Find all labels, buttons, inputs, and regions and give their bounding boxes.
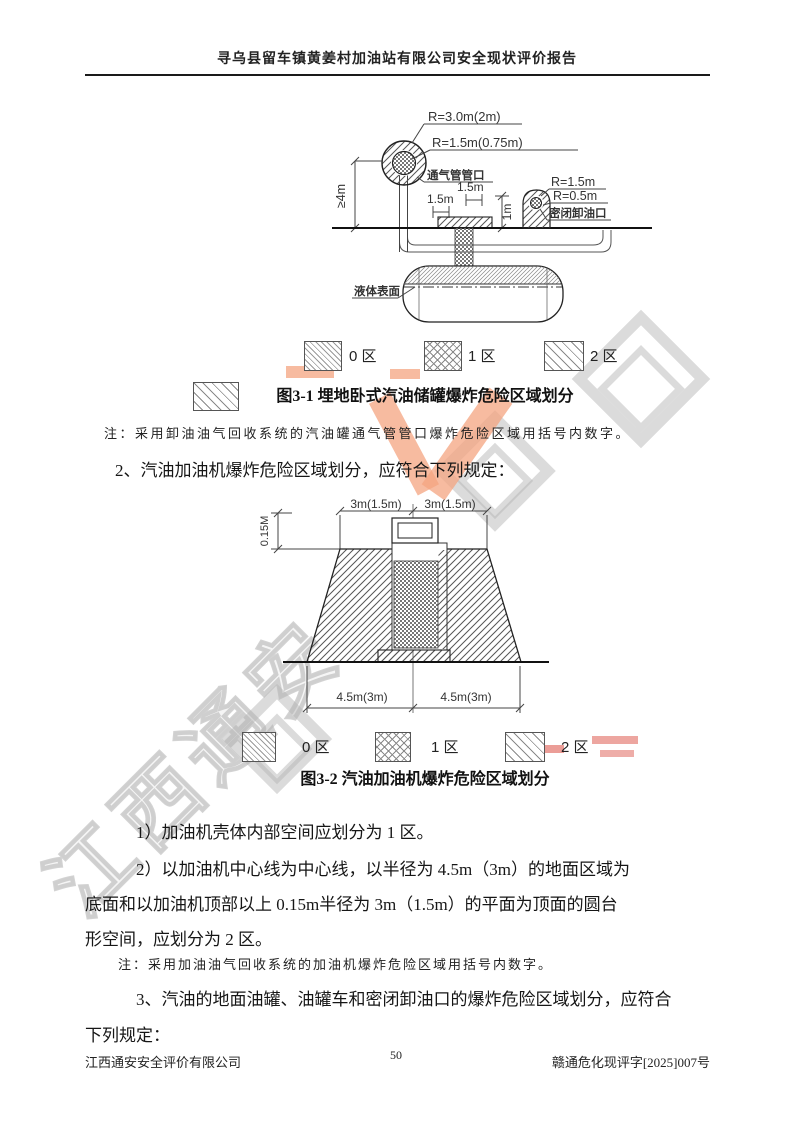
footer-doc-number: 赣通危化现评字[2025]007号 — [470, 1052, 710, 1071]
zone1-column — [455, 228, 473, 266]
legend-swatch-zone0 — [304, 341, 342, 371]
legend-swatch-zone2 — [505, 732, 545, 762]
legend-label-zone0: 0 区 — [302, 736, 330, 757]
vent-zone1-circle — [393, 152, 416, 175]
dim-top-left-label: 3m(1.5m) — [350, 497, 401, 511]
figure-3-1-diagram: ≥4m R=3.0m(2m) R=1.5m(0.75m) 通气管管口 1.5m … — [330, 100, 665, 332]
header-rule — [85, 74, 710, 76]
dim-4m — [351, 157, 383, 232]
dispenser-zone1-fill — [394, 561, 438, 648]
dispenser-side-hatch — [439, 550, 447, 649]
dispenser-display-inner — [398, 523, 432, 538]
unload-port-label: 密闭卸油口 — [548, 206, 607, 220]
body-item2-line1: 2）以加油机中心线为中心线，以半径为 4.5m（3m）的地面区域为 — [136, 855, 630, 880]
page-title: 寻乌县留车镇黄姜村加油站有限公司安全现状评价报告 — [0, 48, 794, 68]
vent-inner-radius-label: R=1.5m(0.75m) — [432, 135, 523, 150]
vent-outer-radius-label: R=3.0m(2m) — [428, 109, 501, 124]
legend-swatch-zone1 — [375, 732, 411, 762]
dim-height-label: 0.15M — [259, 516, 271, 547]
dim-top-right-label: 3m(1.5m) — [424, 497, 475, 511]
body-note2: 注：采用加油油气回收系统的加油机爆炸危险区域用括号内数字。 — [118, 954, 553, 973]
dispenser-base — [378, 650, 450, 662]
watermark-red-fragment — [600, 750, 634, 757]
tank-vapor-zone — [403, 266, 563, 284]
body-item3-line1: 3、汽油的地面油罐、油罐车和密闭卸油口的爆炸危险区域划分，应符合 — [136, 985, 672, 1010]
manhole-slab — [438, 217, 492, 228]
legend-label-zone1: 1 区 — [431, 736, 459, 757]
body-item2-line2: 底面和以加油机顶部以上 0.15m半径为 3m（1.5m）的平面为顶面的圆台 — [85, 890, 618, 915]
dim-1-5m-right-label: 1.5m — [457, 180, 484, 194]
legend-label-zone2: 2 区 — [561, 736, 589, 757]
dim-1m-label: 1m — [500, 204, 514, 221]
footer-company: 江西通安安全评价有限公司 — [85, 1052, 241, 1071]
body-item2-line3: 形空间，应划分为 2 区。 — [85, 925, 272, 950]
dim-height — [271, 509, 340, 553]
dim-1-5m-left-label: 1.5m — [427, 192, 454, 206]
unload-inner-radius-label: R=0.5m — [553, 189, 597, 203]
dim-bottom-right-label: 4.5m(3m) — [440, 690, 491, 704]
legend-swatch-zone2 — [544, 341, 584, 371]
dim-1-5m-left — [433, 206, 449, 218]
legend-label-zone0: 0 区 — [349, 345, 377, 366]
figure-3-2-caption: 图3-2 汽油加油机爆炸危险区域划分 — [56, 765, 794, 789]
underground-pipes — [400, 230, 612, 252]
figure-3-1-note: 注：采用卸油油气回收系统的汽油罐通气管管口爆炸危险区域用括号内数字。 — [104, 423, 631, 442]
legend-label-zone1: 1 区 — [468, 345, 496, 366]
legend-label-zone2: 2 区 — [590, 345, 618, 366]
section-2-heading: 2、汽油加油机爆炸危险区域划分，应符合下列规定： — [115, 456, 515, 481]
watermark-red-fragment — [592, 736, 638, 744]
legend-swatch-zone0 — [242, 732, 276, 762]
dim-4m-label: ≥4m — [334, 184, 348, 208]
unload-outer-radius-label: R=1.5m — [551, 175, 595, 189]
footer-page-number: 50 — [390, 1048, 402, 1063]
unload-port-circle — [531, 198, 542, 209]
dim-1-5m-right — [466, 194, 482, 206]
figure-3-1-caption: 图3-1 埋地卧式汽油储罐爆炸危险区域划分 — [56, 382, 794, 406]
dim-bottom-left-label: 4.5m(3m) — [336, 690, 387, 704]
watermark-salmon-stroke — [390, 369, 420, 379]
body-item1: 1）加油机壳体内部空间应划分为 1 区。 — [136, 818, 434, 843]
legend-swatch-zone1 — [424, 341, 462, 371]
liquid-surface-label: 液体表面 — [354, 284, 400, 298]
report-page: { "header": { "title": "寻乌县留车镇黄姜村加油站有限公司… — [0, 0, 794, 1123]
figure-3-2-diagram: 3m(1.5m) 3m(1.5m) 0.15M 4.5m(3m) 4.5m(3m… — [255, 495, 555, 720]
body-item3-line2: 下列规定： — [85, 1021, 170, 1046]
